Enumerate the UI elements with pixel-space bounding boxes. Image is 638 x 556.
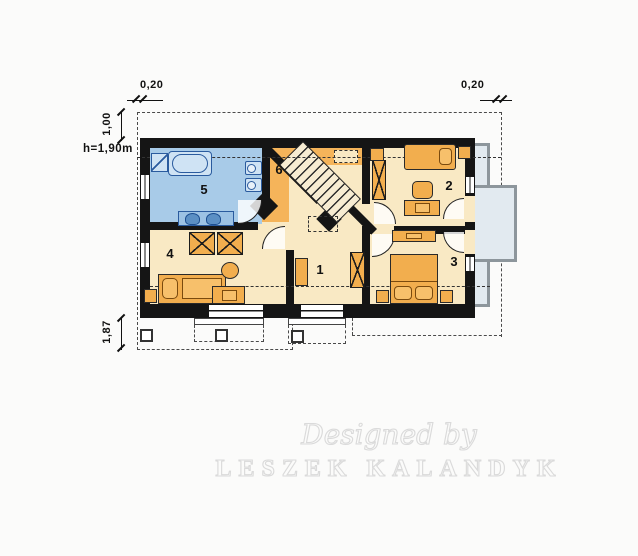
dim-top-right: 0,20 bbox=[461, 79, 484, 91]
nightstand-bedroom3-left bbox=[376, 290, 389, 303]
sill-south-right bbox=[288, 318, 346, 325]
bidet bbox=[245, 178, 262, 192]
bed-pillow bbox=[162, 278, 178, 299]
dim-left-lower: 1,87 bbox=[101, 315, 113, 349]
wardrobe-bedroom4-a bbox=[189, 232, 215, 255]
bidet-bowl bbox=[247, 181, 256, 190]
room-label-bedroom3: 3 bbox=[446, 254, 462, 269]
terrace-post bbox=[215, 329, 228, 342]
desk-chair bbox=[222, 290, 237, 301]
cabinet-bedroom2-corner bbox=[370, 148, 384, 161]
wardrobe-bedroom2 bbox=[372, 160, 386, 200]
eaves-outline-top bbox=[137, 112, 502, 113]
eaves-outline-left bbox=[137, 112, 138, 350]
bed-pillow bbox=[394, 286, 412, 300]
desk-chair bbox=[415, 203, 430, 213]
bathtub bbox=[168, 151, 212, 176]
armchair-bedroom2 bbox=[412, 181, 433, 199]
terrace-post bbox=[291, 330, 304, 343]
bed-bedroom2 bbox=[404, 144, 456, 170]
watermark-line2: LESZEK KALANDYK bbox=[194, 456, 584, 483]
nightstand-bedroom2 bbox=[458, 146, 471, 159]
eaves-outline-bottom-right bbox=[352, 335, 502, 336]
balcony-rail-top bbox=[475, 143, 490, 188]
dormer-outline-left bbox=[194, 325, 264, 342]
cabinet-hall bbox=[295, 258, 308, 286]
window-bedroom2-east bbox=[465, 176, 475, 194]
window-bedroom3-east bbox=[465, 256, 475, 272]
window-bathroom-west bbox=[140, 174, 150, 200]
wardrobe-hall bbox=[350, 252, 365, 288]
hall-dashed-opening bbox=[308, 216, 338, 232]
watermark-line1: Designed by bbox=[224, 418, 554, 451]
toilet bbox=[245, 161, 262, 175]
wardrobe-bedroom4-b bbox=[217, 232, 243, 255]
desk-bedroom4 bbox=[212, 286, 245, 304]
dresser-drawer bbox=[406, 233, 422, 239]
balcony-rail-bay bbox=[475, 185, 517, 262]
shower-basin bbox=[151, 153, 168, 172]
window-hall-south bbox=[300, 304, 344, 318]
nightstand-bedroom3-right bbox=[440, 290, 453, 303]
door-gap-bedroom2-balcony bbox=[465, 196, 475, 222]
floor-plan-canvas: 0,20 0,20 1,00 h=1,90m 1,87 bbox=[0, 0, 638, 556]
dim-top-right-line bbox=[480, 100, 512, 101]
washbasin-counter bbox=[178, 211, 234, 226]
window-bedroom4-west bbox=[140, 242, 150, 268]
dim-tick bbox=[117, 344, 125, 352]
door-gap-bedroom3-balcony bbox=[465, 230, 475, 254]
toilet-bowl bbox=[247, 164, 256, 173]
dresser-bedroom3 bbox=[392, 230, 436, 242]
window-bedroom4-south bbox=[208, 304, 264, 318]
plant-bedroom4 bbox=[221, 262, 239, 279]
room-label-bedroom2: 2 bbox=[441, 178, 457, 193]
bed-pillow bbox=[439, 148, 452, 165]
washbasin bbox=[185, 213, 200, 225]
bed-bedroom3 bbox=[390, 254, 438, 304]
room-label-landing: 6 bbox=[271, 162, 287, 177]
sill-south-left bbox=[194, 318, 264, 325]
eaves-outline-bottom-left bbox=[137, 349, 293, 350]
bed-pillow bbox=[415, 286, 433, 300]
room-label-bathroom: 5 bbox=[196, 182, 212, 197]
dim-top-left: 0,20 bbox=[140, 79, 163, 91]
height-label: h=1,90m bbox=[83, 143, 133, 155]
washbasin bbox=[206, 213, 221, 225]
wall-exterior-right bbox=[465, 138, 475, 318]
bed-blanket-line bbox=[391, 281, 437, 282]
room-label-hall: 1 bbox=[312, 262, 328, 277]
dim-left-upper: 1,00 bbox=[101, 107, 113, 141]
eaves-outline-step-right bbox=[352, 318, 353, 335]
desk-bedroom2 bbox=[404, 200, 440, 216]
nightstand-bedroom4 bbox=[144, 289, 157, 303]
room-label-bedroom4: 4 bbox=[162, 246, 178, 261]
balcony-rail-bottom bbox=[475, 262, 490, 307]
terrace-post bbox=[140, 329, 153, 342]
bathtub-inner bbox=[172, 154, 208, 173]
wall-bedroom4-hall bbox=[286, 250, 294, 304]
